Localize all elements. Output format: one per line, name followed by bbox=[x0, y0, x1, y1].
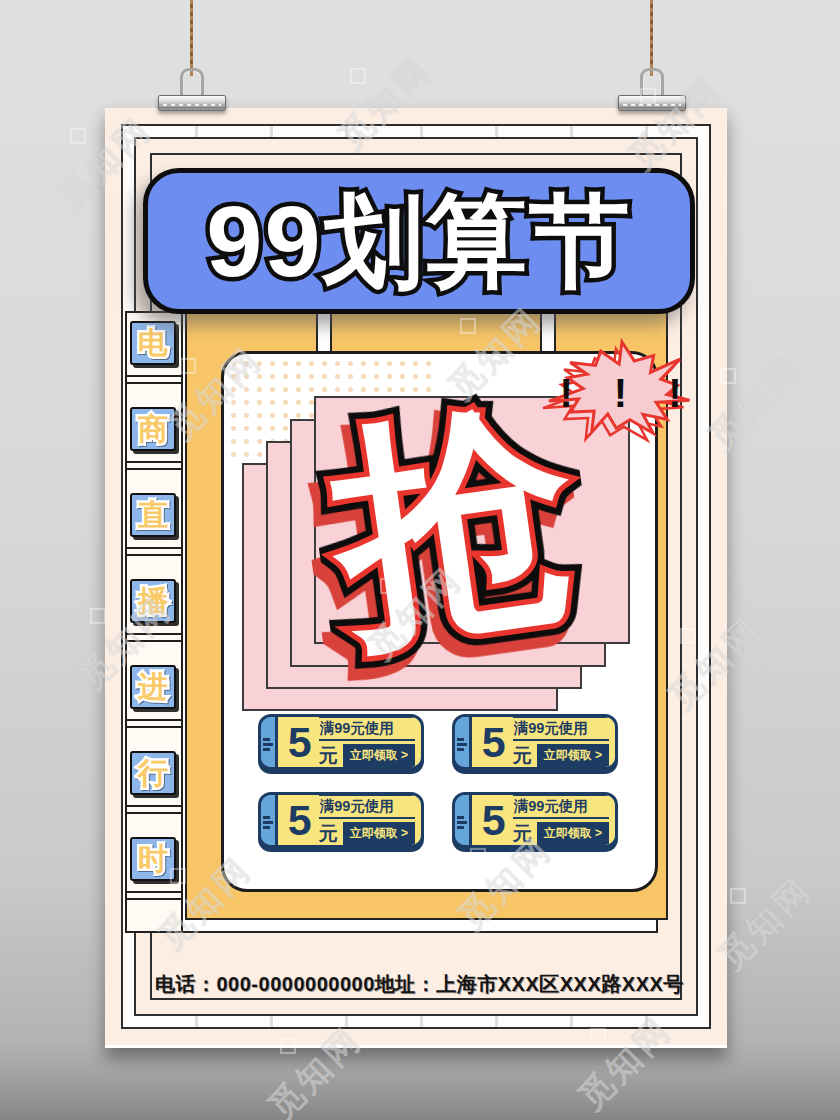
clip-wire-icon bbox=[640, 68, 664, 98]
coupon-tab bbox=[261, 717, 278, 767]
coupon-cta-button[interactable]: 立即领取 > bbox=[343, 744, 415, 767]
contact-info: 电话：000-0000000000地址：上海市XXX区XXX路XXX号 bbox=[155, 971, 700, 998]
ladder-rung bbox=[127, 805, 181, 807]
ladder-rung bbox=[127, 547, 181, 549]
sidebar-strip: 电电电商商商直直直播播播进进进行行行时时时 bbox=[125, 311, 183, 933]
hanging-string-left bbox=[190, 0, 193, 76]
burst-badge: ! ! ! bbox=[544, 334, 700, 452]
scene: 电电电商商商直直直播播播进进进行行行时时时 抢 抢 抢 抢 ! ! ! 99划算… bbox=[0, 0, 840, 1120]
title-banner: 99划算节 99划算节 99划算节 bbox=[143, 168, 695, 314]
coupon-unit: 元 bbox=[319, 821, 338, 847]
sidebar-char: 进进进 bbox=[138, 667, 168, 707]
coupon: 5 满99元使用 元 立即领取 > bbox=[258, 792, 424, 848]
sidebar-char: 行行行 bbox=[138, 753, 168, 793]
coupon-body: 5 满99元使用 元 立即领取 > bbox=[278, 795, 421, 845]
coupon-tab bbox=[455, 795, 472, 845]
ladder-rung bbox=[127, 375, 181, 377]
ladder-rung bbox=[127, 898, 181, 900]
coupon: 5 满99元使用 元 立即领取 > bbox=[452, 714, 618, 770]
coupon-condition: 满99元使用 bbox=[513, 794, 609, 819]
coupon-unit: 元 bbox=[319, 743, 338, 769]
coupon-condition: 满99元使用 bbox=[319, 794, 415, 819]
ladder-rung bbox=[127, 726, 181, 728]
coupon-condition: 满99元使用 bbox=[513, 716, 609, 741]
ladder-rung bbox=[127, 812, 181, 814]
ladder-rung bbox=[127, 633, 181, 635]
sidebar-char: 时时时 bbox=[138, 839, 168, 879]
coupon-amount: 5 bbox=[482, 719, 506, 765]
exclamation-text: ! ! ! bbox=[544, 334, 700, 452]
ladder-rung bbox=[127, 468, 181, 470]
sidebar-char: 直直直 bbox=[138, 495, 168, 535]
sidebar-box: 时时时 bbox=[130, 837, 176, 881]
sidebar-char: 电电电 bbox=[138, 323, 168, 363]
sidebar-box: 电电电 bbox=[130, 321, 176, 365]
coupon-tab bbox=[261, 795, 278, 845]
ladder-rung bbox=[127, 554, 181, 556]
sidebar-box: 进进进 bbox=[130, 665, 176, 709]
coupon-amount: 5 bbox=[288, 719, 312, 765]
sidebar-box: 商商商 bbox=[130, 407, 176, 451]
coupon: 5 满99元使用 元 立即领取 > bbox=[452, 792, 618, 848]
clip-bar bbox=[158, 95, 226, 111]
sidebar-box: 播播播 bbox=[130, 579, 176, 623]
coupon-condition: 满99元使用 bbox=[319, 716, 415, 741]
ladder-rung bbox=[127, 640, 181, 642]
coupon-unit: 元 bbox=[513, 821, 532, 847]
watermark-diamond-icon bbox=[350, 68, 366, 84]
coupon-amount: 5 bbox=[482, 797, 506, 843]
sidebar-box: 行行行 bbox=[130, 751, 176, 795]
coupon: 5 满99元使用 元 立即领取 > bbox=[258, 714, 424, 770]
watermark-diamond-icon bbox=[730, 888, 746, 904]
watermark-diamond-icon bbox=[90, 608, 106, 624]
coupon-cta-button[interactable]: 立即领取 > bbox=[537, 822, 609, 845]
sidebar-char: 播播播 bbox=[138, 581, 168, 621]
ladder-rung bbox=[127, 461, 181, 463]
coupon-unit: 元 bbox=[513, 743, 532, 769]
hanging-string-right bbox=[650, 0, 653, 76]
coupon-body: 5 满99元使用 元 立即领取 > bbox=[472, 795, 615, 845]
coupon-tab bbox=[455, 717, 472, 767]
clip-bar bbox=[618, 95, 686, 111]
ladder-rung bbox=[127, 719, 181, 721]
coupon-cta-button[interactable]: 立即领取 > bbox=[343, 822, 415, 845]
page-title: 99划算节 99划算节 99划算节 bbox=[206, 173, 631, 309]
ladder-rung bbox=[127, 382, 181, 384]
coupon-body: 5 满99元使用 元 立即领取 > bbox=[472, 717, 615, 767]
coupon-amount: 5 bbox=[288, 797, 312, 843]
coupon-grid: 5 满99元使用 元 立即领取 > 5 满99元使用 元 立即领取 > bbox=[258, 714, 618, 848]
sidebar-char: 商商商 bbox=[138, 409, 168, 449]
ladder-rung bbox=[127, 891, 181, 893]
coupon-body: 5 满99元使用 元 立即领取 > bbox=[278, 717, 421, 767]
sidebar-box: 直直直 bbox=[130, 493, 176, 537]
coupon-cta-button[interactable]: 立即领取 > bbox=[537, 744, 609, 767]
clip-wire-icon bbox=[180, 68, 204, 98]
watermark-diamond-icon bbox=[70, 128, 86, 144]
